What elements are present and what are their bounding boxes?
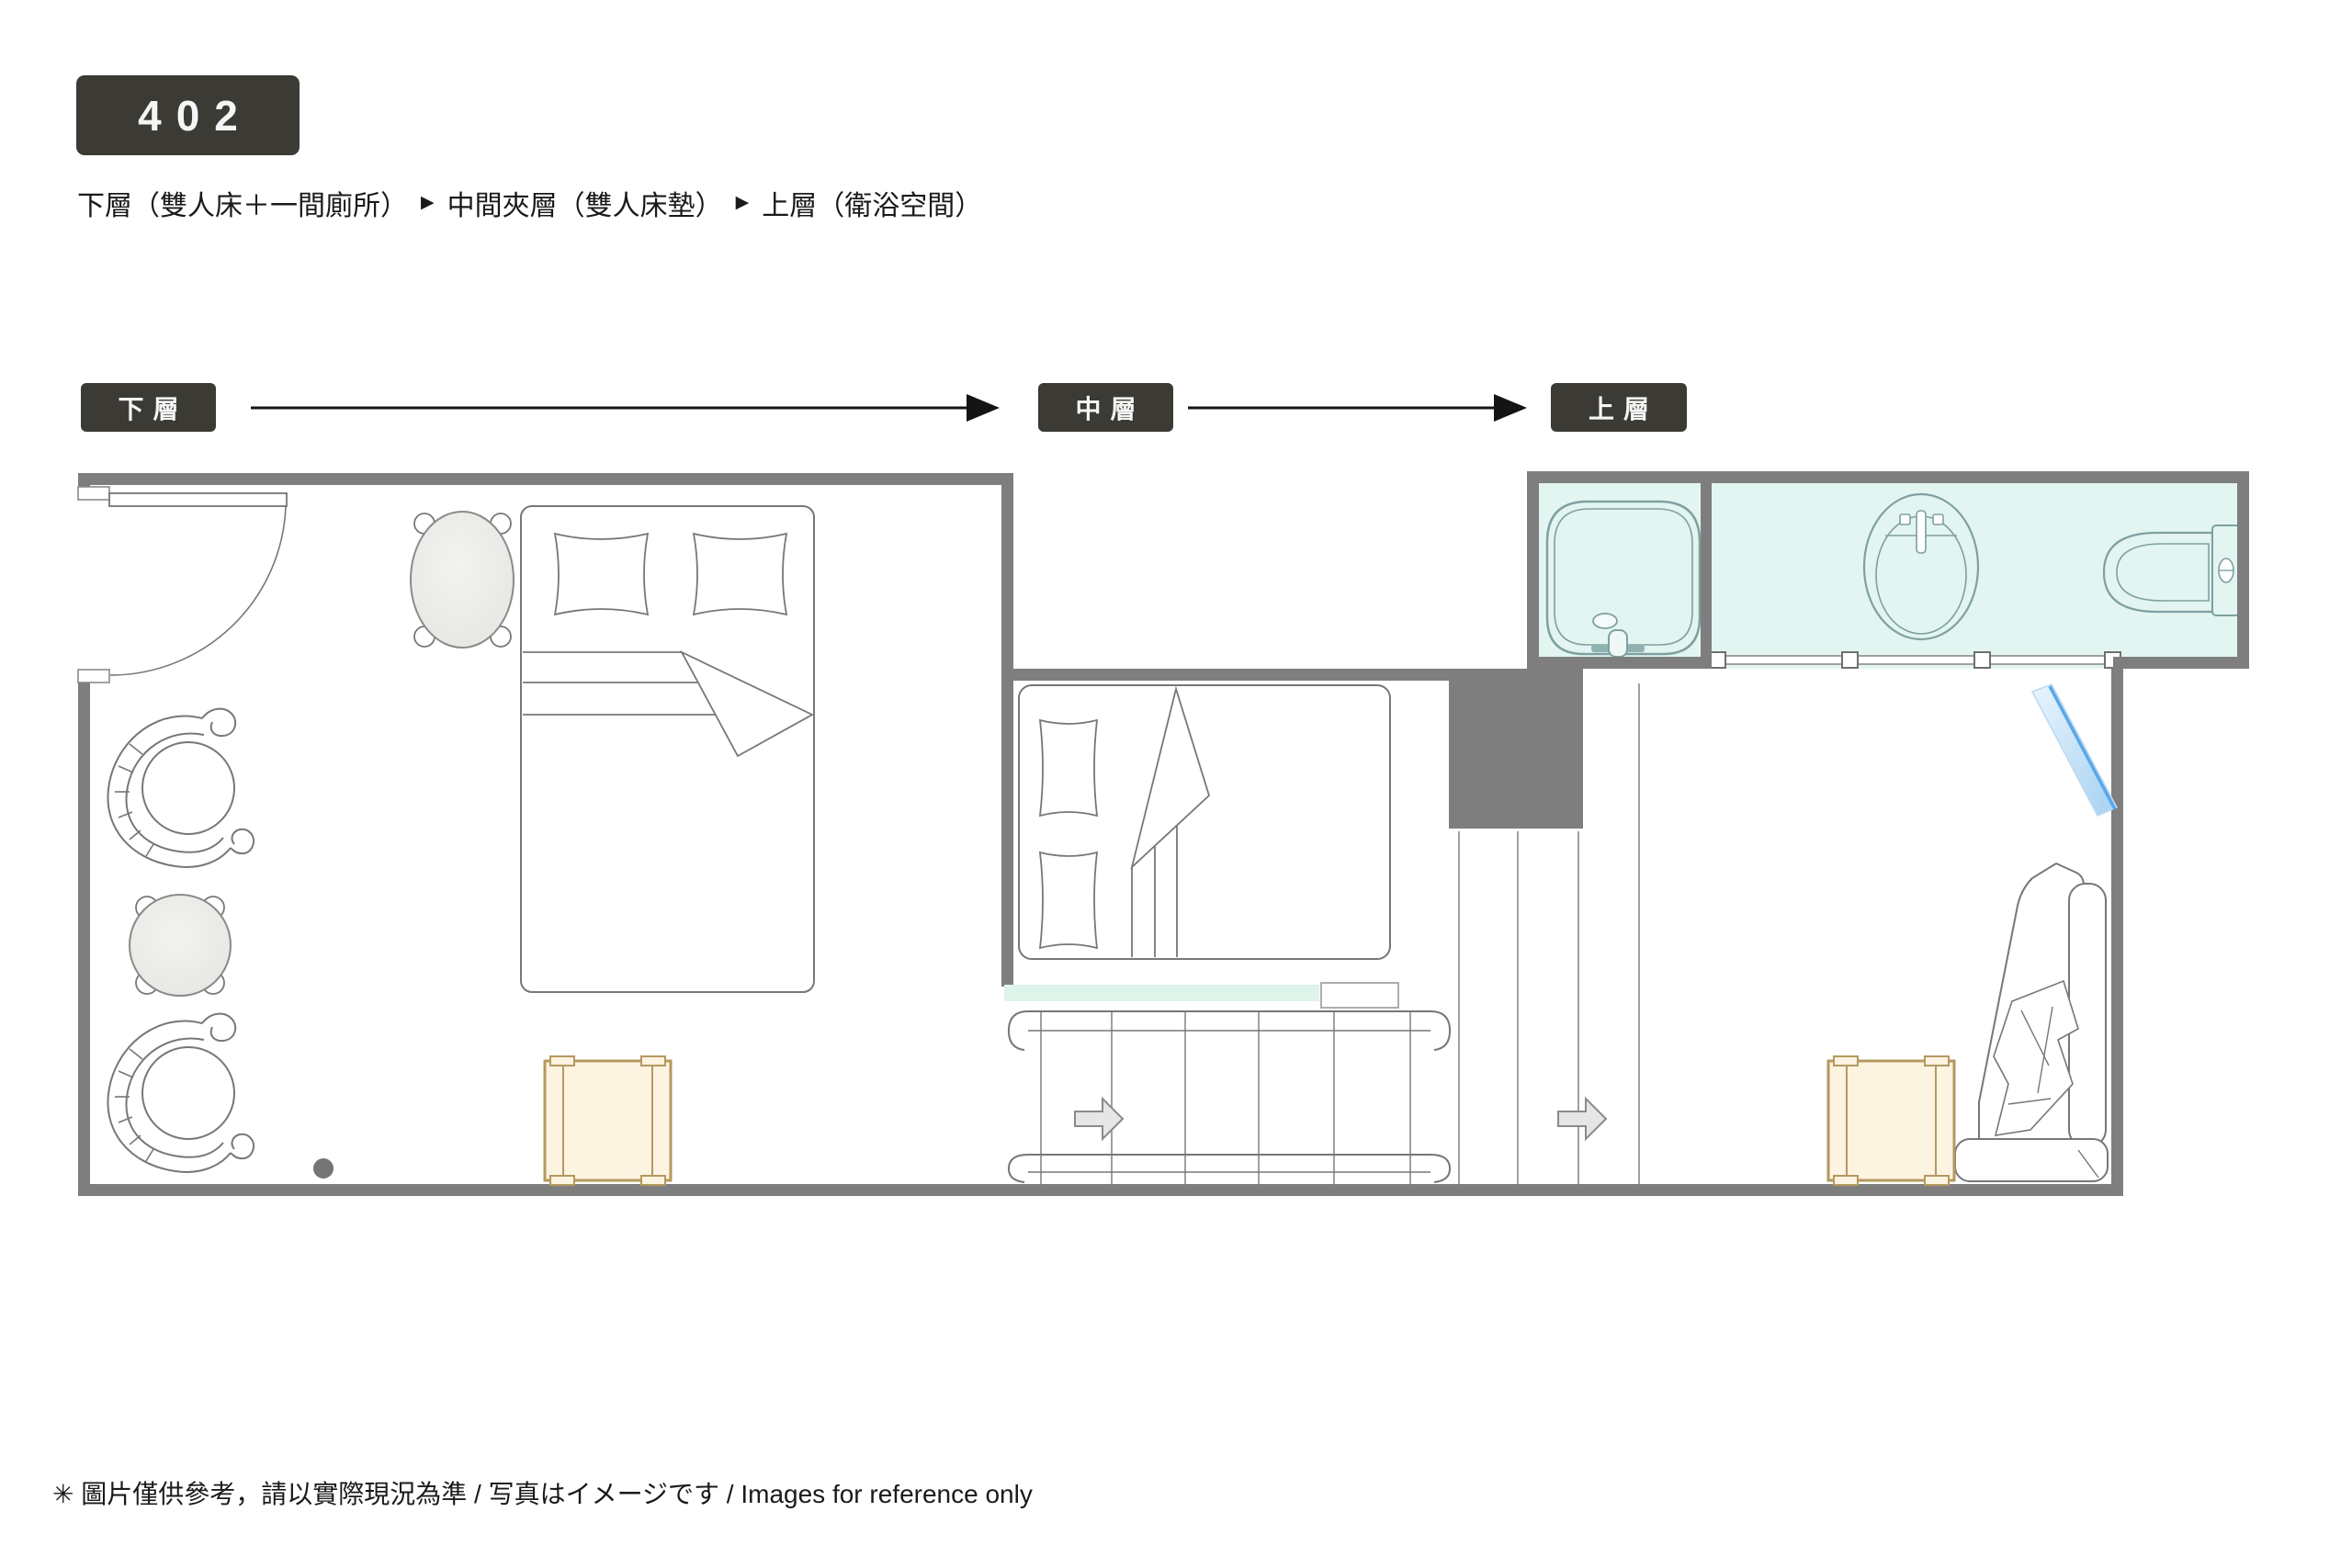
bathtub-icon xyxy=(1547,502,1700,657)
bathtub-divider-wall xyxy=(1701,483,1712,657)
stair-core-block xyxy=(1449,669,1583,829)
handrail-icon xyxy=(1009,1011,1450,1050)
door-swing-arc xyxy=(110,506,286,675)
stair-landing xyxy=(1321,983,1398,1008)
wooden-bench-icon xyxy=(1828,1056,1954,1185)
round-table-icon xyxy=(130,895,231,996)
stair-direction-arrow-icon xyxy=(1075,1099,1123,1139)
floorplan-page: 402 下層（雙人床＋一間廁所）▶中間夾層（雙人床墊）▶上層（衛浴空間） 下層 … xyxy=(0,0,2352,1568)
oval-side-table-icon xyxy=(411,512,514,648)
lounge-chaise-icon xyxy=(1955,863,2108,1181)
pillow-icon xyxy=(1040,852,1097,948)
mezzanine-mattress-icon xyxy=(1019,685,1390,959)
pillow-icon xyxy=(555,534,648,615)
scroll-armchair-icon xyxy=(107,1014,254,1172)
mirror-icon xyxy=(2032,684,2117,816)
toilet-icon xyxy=(2104,525,2240,615)
bathtub-drain xyxy=(1593,614,1617,628)
pillow-icon xyxy=(694,534,786,615)
reference-note: ✳ 圖片僅供參考，請以實際現況為準 / 写真はイメージです / Images f… xyxy=(52,1474,1033,1511)
middle-mezzanine xyxy=(1004,685,1450,1184)
door-leaf xyxy=(109,493,287,506)
lower-level-room xyxy=(107,506,814,1185)
partition-handle xyxy=(1974,652,1990,668)
scroll-armchair-icon xyxy=(107,709,254,867)
floorplan-drawing xyxy=(0,0,2352,1568)
partition-handle xyxy=(1842,652,1858,668)
bathtub-faucet xyxy=(1609,630,1627,657)
basin-handle-left xyxy=(1900,514,1910,525)
basin-handle-right xyxy=(1933,514,1943,525)
entry-door-icon xyxy=(78,487,287,682)
floor-dot xyxy=(313,1158,334,1179)
washbasin-icon xyxy=(1864,494,1978,639)
handrail-icon xyxy=(1009,1155,1450,1182)
partition-handle xyxy=(1710,652,1725,668)
staircase-middle xyxy=(1041,1011,1410,1184)
stair-direction-arrow-icon xyxy=(1558,1099,1606,1139)
wooden-bench-icon xyxy=(545,1056,671,1185)
basin-faucet xyxy=(1917,511,1926,553)
pillow-icon xyxy=(1040,720,1097,816)
bathroom-upper-level xyxy=(1527,471,2249,669)
mezzanine-edge-strip xyxy=(1004,985,1319,1001)
double-bed-icon xyxy=(521,506,814,992)
